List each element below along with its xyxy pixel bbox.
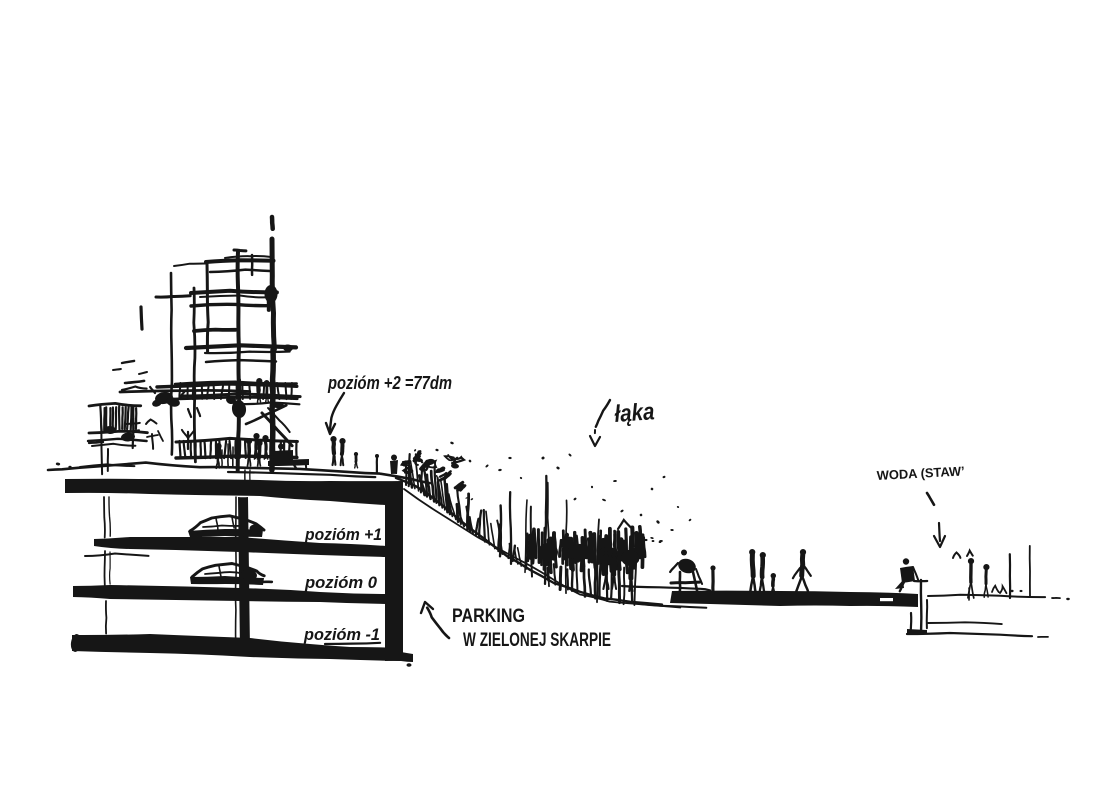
svg-text:PARKING: PARKING <box>452 606 525 627</box>
svg-text:pozióm +2 =77dm: pozióm +2 =77dm <box>327 373 452 393</box>
svg-text:łąka: łąka <box>614 398 656 428</box>
svg-text:pozióm +1: pozióm +1 <box>304 525 382 544</box>
svg-text:pozióm 0: pozióm 0 <box>304 573 378 592</box>
svg-text:pozióm -1: pozióm -1 <box>303 625 380 644</box>
svg-text:W ZIELONEJ SKARPIE: W ZIELONEJ SKARPIE <box>463 630 611 651</box>
